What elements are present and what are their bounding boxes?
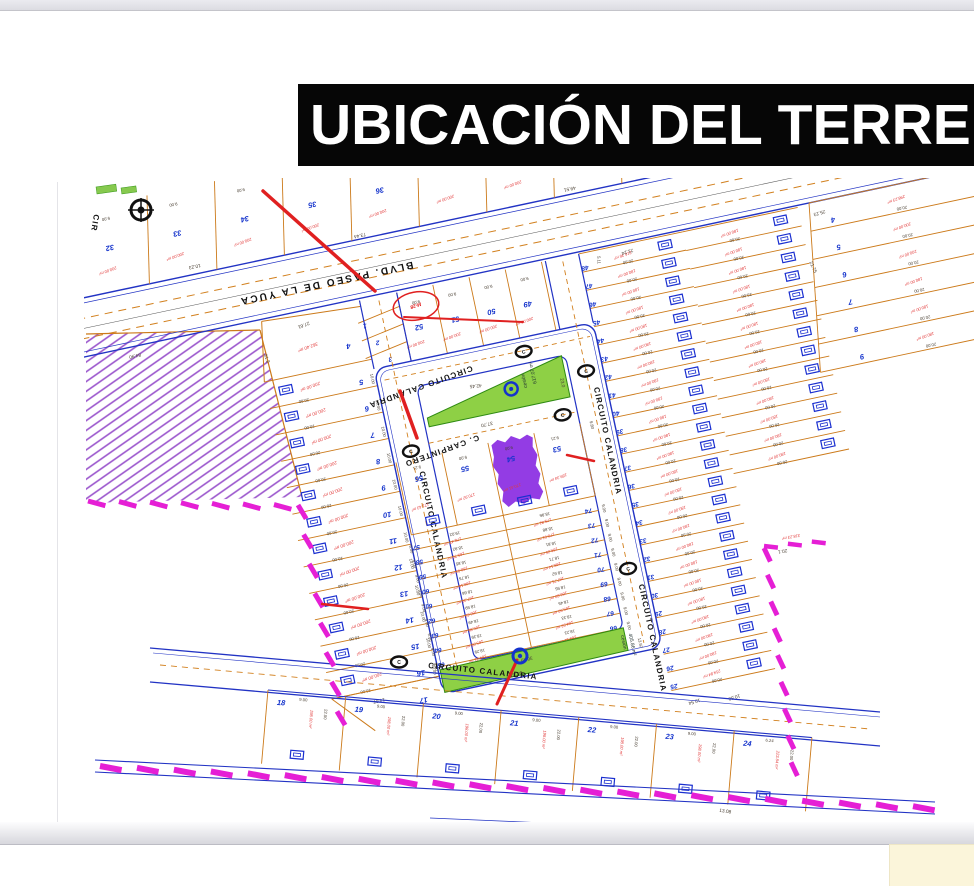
- right-lot-column-b: 180.00 m²20.00180.00 m²20.00180.00 m²20.…: [682, 207, 849, 475]
- garage-icon-inner: [333, 625, 340, 629]
- next-slide-corner: [889, 844, 974, 886]
- boundary-dash: [273, 502, 292, 512]
- lot-dim: 9.00: [299, 697, 308, 703]
- lot-area: 170.92 m²: [456, 492, 476, 503]
- boundary-dash: [691, 792, 714, 802]
- boundary-dash: [318, 622, 330, 638]
- garage-icon: [809, 382, 823, 393]
- lot-area: 200.00 m²: [503, 179, 524, 191]
- garage-icon-inner: [449, 767, 456, 771]
- lot-number: 56: [413, 473, 424, 484]
- red-dimension-mark: [400, 391, 417, 438]
- lot-dim: 20.00: [919, 314, 931, 321]
- garage-icon-inner: [371, 760, 378, 764]
- lot-dim: 20.00: [736, 273, 748, 280]
- boundary-dash: [301, 533, 313, 549]
- street-label-cir-partial: CIR: [89, 214, 101, 233]
- lot-dim: 20.00: [707, 659, 719, 666]
- garage-icon-inner: [661, 243, 668, 247]
- lot-dim: 18.66: [461, 589, 473, 596]
- garage-icon-inner: [282, 388, 289, 392]
- oval-letter: C: [626, 566, 631, 573]
- lot-area: 200.00 m²: [299, 380, 322, 392]
- lot-dim: 20.00: [660, 440, 672, 447]
- garage-icon-inner: [824, 441, 831, 445]
- lot-dim: 9.00: [626, 621, 633, 631]
- lot-number: 4: [345, 341, 352, 351]
- lot-dim: 20.00: [688, 568, 700, 575]
- lot-dim: 20.00: [695, 604, 707, 611]
- lot-number: 32: [104, 243, 115, 254]
- lot-dim: 20.00: [309, 450, 321, 457]
- garage-icon: [801, 345, 815, 356]
- garage-icon: [773, 215, 787, 226]
- garage-icon: [312, 543, 326, 554]
- garage-icon-inner: [604, 780, 611, 784]
- garage-icon-inner: [681, 334, 688, 338]
- garage-icon: [368, 757, 382, 766]
- lot-line: [730, 430, 845, 455]
- slide-bottom-shadow: [0, 822, 974, 845]
- lot-dim: 10.23: [188, 262, 201, 270]
- garage-icon-inner: [812, 385, 819, 389]
- lot-dim: 9.00: [613, 562, 620, 572]
- lot-line: [503, 515, 531, 647]
- garage-icon: [677, 330, 691, 341]
- lot-dim: 20.00: [901, 232, 913, 239]
- lot-line: [541, 262, 556, 330]
- boundary-dash: [321, 774, 344, 784]
- lot-dim: 20.00: [637, 331, 649, 338]
- lot-dim: 9.00: [604, 518, 611, 528]
- green-patch: [96, 184, 117, 194]
- lot-area: 198.00 m²: [463, 723, 470, 742]
- lot-line: [734, 449, 849, 474]
- lot-line: [726, 412, 841, 437]
- garage-icon-inner: [719, 515, 726, 519]
- lot-area: 200.00 m²: [310, 433, 333, 445]
- lot-number: 33: [172, 228, 183, 239]
- lot-number: 34: [239, 214, 250, 225]
- lot-dim: 9.00: [33, 230, 43, 237]
- lot-area: 200.00 m²: [327, 512, 350, 524]
- lot-line: [698, 282, 813, 307]
- boundary-dash: [839, 800, 862, 810]
- garage-icon: [681, 349, 695, 360]
- garage-icon-inner: [327, 599, 334, 603]
- lot-number: 21: [509, 718, 519, 728]
- oval-letter: C: [560, 412, 565, 419]
- lot-line: [817, 268, 974, 316]
- garage-icon-inner: [299, 467, 306, 471]
- lot-dim: 20.00: [699, 622, 711, 629]
- lot-number: 71: [593, 550, 602, 558]
- lot-number: 19: [354, 705, 364, 715]
- lot-number: 49: [522, 299, 534, 310]
- lot-number: 6: [363, 404, 369, 414]
- lot-dim: 18.23: [563, 629, 575, 636]
- boundary-dash: [180, 500, 199, 510]
- garage-icon-inner: [816, 404, 823, 408]
- garage-icon: [658, 240, 672, 251]
- garage-icon-inner: [293, 440, 300, 444]
- garage-icon: [716, 512, 730, 523]
- lot-dim: 9.00: [623, 607, 630, 617]
- lot-dim: 18.81: [545, 540, 557, 547]
- lot-dim: 18.33: [560, 614, 572, 621]
- boundary-dash: [395, 778, 418, 788]
- lot-area: 180.00 m²: [904, 276, 924, 287]
- lot-area: 200.00 m²: [478, 323, 499, 335]
- garage-icon-inner: [673, 297, 680, 301]
- lot-number: 31: [37, 257, 47, 268]
- garage-icon: [340, 675, 354, 686]
- lot-number: 8: [375, 457, 381, 467]
- lot-dim: 20.00: [732, 255, 744, 262]
- garage-icon-inner: [305, 493, 312, 497]
- lot-dim: 20.00: [728, 236, 740, 243]
- lot-line: [276, 412, 384, 435]
- lot-dim: 9.00: [519, 276, 529, 283]
- lot-dim: 20.00: [303, 424, 315, 431]
- boundary-dash: [358, 776, 381, 786]
- lot-area: 200.00 m²: [344, 592, 367, 604]
- garage-icon-inner: [669, 279, 676, 283]
- lot-dim: 9.80: [589, 421, 596, 431]
- garage-icon-inner: [746, 643, 753, 647]
- oval-letter: C: [584, 369, 589, 376]
- lot-line: [694, 263, 809, 288]
- lot-dim: 20.00: [629, 295, 641, 302]
- lot-dim: 19.02: [449, 530, 461, 537]
- garage-icon-inner: [723, 534, 730, 538]
- lot-area: 200.00 m²: [898, 248, 919, 260]
- lot-dim: 10.19: [47, 292, 60, 300]
- lot-area: 198.00 m²: [541, 730, 548, 749]
- lot-dim: 9.00: [447, 291, 457, 298]
- lot-line: [819, 295, 974, 344]
- lot-number: 18: [277, 698, 287, 708]
- boundary-dash: [654, 790, 677, 800]
- lot-line: [718, 375, 833, 400]
- lot-area: 200.00 m²: [98, 265, 119, 277]
- lot-number: 8: [852, 325, 859, 335]
- lot-dim: 18.85: [455, 560, 467, 567]
- lot-number: 73: [587, 521, 596, 529]
- boundary-dash: [762, 547, 773, 563]
- lot-line: [199, 181, 233, 269]
- lot-number: 5: [835, 242, 842, 252]
- lot-dim: 20.00: [354, 661, 366, 668]
- garage-icon-inner: [750, 661, 757, 665]
- lot-dim: 20.00: [925, 342, 937, 349]
- lot-dim: 20.00: [748, 329, 760, 336]
- lot-area: 298.23 m²: [886, 194, 907, 206]
- lot-dim: 9.00: [303, 173, 313, 180]
- garage-icon-inner: [739, 606, 746, 610]
- boundary-dash: [779, 681, 790, 697]
- lot-dim: 20.00: [744, 310, 756, 317]
- lot-line: [131, 195, 165, 283]
- boundary-dash: [432, 779, 455, 789]
- lot-dim: 9.00: [236, 187, 246, 194]
- green-triangle-park: cesión 617.07 m² 37.70 42.45 23.0: [420, 355, 572, 439]
- lot-dim: 9.00: [619, 592, 626, 602]
- boundary-dash: [765, 574, 776, 590]
- lot-area: 198.00 m²: [385, 716, 392, 735]
- title-banner: UBICACIÓN DEL TERRENO: [298, 84, 974, 166]
- lot-area: 200.00 m²: [165, 251, 186, 263]
- boundary-dash: [785, 734, 796, 750]
- lot-dim: 9.00: [458, 455, 468, 462]
- boundary-dash: [324, 651, 336, 667]
- lot-line: [264, 359, 372, 382]
- lot-dim: 20.00: [298, 397, 310, 404]
- garage-icon: [318, 569, 332, 580]
- lot-number: 52: [413, 322, 424, 333]
- garage-icon-inner: [727, 552, 734, 556]
- lot-dim: 18.55: [554, 585, 566, 592]
- garage-icon: [296, 464, 310, 475]
- garage-icon-inner: [288, 414, 295, 418]
- lot-dim: 9.00: [168, 201, 178, 208]
- garage-icon-inner: [700, 425, 707, 429]
- boundary-dash: [136, 765, 159, 775]
- garage-icon: [700, 440, 714, 451]
- oval-letter: C: [409, 449, 414, 456]
- lot-dim: 42.45: [469, 382, 482, 389]
- garage-icon-inner: [688, 370, 695, 374]
- lot-line: [813, 213, 974, 259]
- lot-line: [671, 669, 775, 691]
- garage-icon: [743, 640, 757, 651]
- lot-dim: 27.61: [297, 320, 311, 330]
- lot-dim: 10.00: [369, 373, 376, 385]
- garage-icon: [329, 622, 343, 633]
- lot-line: [396, 462, 411, 534]
- lot-number: 2: [375, 338, 381, 346]
- lot-number: 67: [606, 609, 615, 617]
- garage-icon: [704, 458, 718, 469]
- garage-icon-inner: [800, 330, 807, 334]
- lot-number: 72: [590, 536, 599, 544]
- lot-dim: 20.00: [913, 287, 925, 294]
- lot-dim: 9.00: [377, 704, 386, 710]
- lot-area: 200.00 m²: [368, 208, 389, 220]
- lot-dim: 20.00: [641, 349, 653, 356]
- lot-dim: 9.00: [688, 731, 697, 737]
- lot-area: 200.00 m²: [233, 236, 254, 248]
- lot-line: [339, 697, 345, 771]
- lot-line: [710, 337, 825, 362]
- boundary-dash: [469, 781, 492, 791]
- lot-dim: 20.00: [896, 205, 908, 212]
- garage-icon-inner: [820, 422, 827, 426]
- street-label-carpintero: C. CARPINTERO: [403, 433, 480, 468]
- boundary-dash: [210, 769, 233, 779]
- lot-dim: 9.00: [616, 577, 623, 587]
- garage-icon-inner: [696, 406, 703, 410]
- lot-dim: 22.00: [323, 709, 329, 721]
- lot-number: 7: [369, 430, 375, 440]
- lot-number: 9: [858, 352, 865, 362]
- garage-icon-inner: [567, 489, 574, 493]
- garage-icon-inner: [743, 625, 750, 629]
- boundary-dash: [802, 798, 825, 808]
- boundary-dash: [284, 772, 307, 782]
- garage-icon: [472, 505, 486, 516]
- lot-dim: 20.00: [657, 422, 669, 429]
- garage-icon: [523, 771, 537, 780]
- garage-icon: [735, 603, 749, 614]
- lot-dim: 20.00: [342, 609, 354, 616]
- lot-line: [0, 224, 30, 312]
- lot-number: 68: [603, 594, 612, 602]
- garage-icon-inner: [338, 652, 345, 656]
- garage-icon: [821, 438, 835, 449]
- boundary-dash: [149, 500, 168, 510]
- lot-dim: 13.97: [637, 637, 644, 649]
- green-patch: [121, 186, 137, 194]
- lot-area: 200.00 m²: [30, 279, 51, 291]
- lot-number: 10: [382, 510, 392, 520]
- lot-number: 55: [459, 463, 470, 474]
- boundary-dash: [789, 761, 800, 777]
- lot-area: 223.84 m²: [774, 749, 781, 769]
- lot-line: [686, 226, 801, 251]
- highlighted-target-lot: [487, 431, 546, 508]
- lot-dim: 20.00: [676, 513, 688, 520]
- lot-dim: 5.11: [596, 256, 601, 265]
- lot-area: 200.00 m²: [570, 165, 591, 177]
- lot-area: 200.00 m²: [339, 565, 362, 577]
- lot-area: 189.34 m²: [548, 472, 568, 483]
- garage-icon: [685, 367, 699, 378]
- boundary-dash: [775, 654, 786, 670]
- lot-dim: 20.00: [680, 531, 692, 538]
- garage-icon-inner: [735, 588, 742, 592]
- lot-line: [281, 438, 389, 461]
- lot-number: 74: [584, 506, 593, 514]
- lot-number: 50: [486, 307, 497, 318]
- lot-dim: 20.00: [348, 635, 360, 642]
- lot-line: [270, 386, 378, 409]
- lot-dim: 22.00: [556, 729, 562, 741]
- boundary-dash: [247, 770, 270, 780]
- lot-dim: 20.00: [756, 366, 768, 373]
- lot-dim: 9.00: [483, 284, 493, 291]
- page-title: UBICACIÓN DEL TERRENO: [298, 84, 974, 166]
- lot-dim: 20.00: [768, 422, 780, 429]
- garage-icon: [301, 490, 315, 501]
- monument-icon: [128, 198, 154, 222]
- lot-dim: 20.00: [684, 549, 696, 556]
- garage-icon-inner: [708, 461, 715, 465]
- lot-number: 26: [665, 663, 675, 672]
- garage-icon: [797, 326, 811, 337]
- garage-icon: [335, 649, 349, 660]
- garage-icon: [689, 385, 703, 396]
- lot-dim: 18.96: [539, 511, 551, 518]
- garage-icon: [279, 385, 293, 396]
- garage-icon: [724, 549, 738, 560]
- lot-dim: 9.00: [455, 710, 464, 716]
- lot-dim: 9.00: [601, 504, 608, 514]
- lot-number: 69: [600, 580, 609, 588]
- lot-area: 198.00 m²: [696, 744, 703, 763]
- lot-dim: 22.00: [633, 736, 639, 748]
- red-dimension-mark: [263, 191, 375, 291]
- lot-dim: 22.00: [400, 716, 406, 728]
- garage-icon: [805, 364, 819, 375]
- garage-icon-inner: [808, 367, 815, 371]
- garage-icon: [793, 308, 807, 319]
- lot-area: 200.00 m²: [333, 539, 356, 551]
- lot-dim: 18.88: [542, 526, 554, 533]
- lot-dim: 9.00: [101, 216, 111, 223]
- lot-line: [572, 717, 578, 791]
- lot-dim: 20.00: [331, 556, 343, 563]
- boundary-dash: [543, 785, 566, 795]
- garage-icon: [708, 476, 722, 487]
- lot-line: [495, 710, 501, 784]
- boundary-dash: [875, 801, 898, 811]
- garage-icon: [785, 271, 799, 282]
- lot-number: 70: [596, 565, 605, 573]
- lot-number: 5: [358, 378, 364, 388]
- garage-icon-inner: [715, 497, 722, 501]
- garage-icon-inner: [781, 237, 788, 241]
- boundary-dash: [329, 681, 341, 697]
- lot-number: 9: [380, 483, 386, 493]
- lot-area: 198.00 m²: [619, 737, 626, 756]
- garage-icon: [747, 658, 761, 669]
- garage-icon-inner: [310, 520, 317, 524]
- lot-dim: 20.00: [668, 477, 680, 484]
- lot-dim: 20.00: [772, 441, 784, 448]
- lot-dim: 20.00: [326, 529, 338, 536]
- lot-line: [287, 465, 395, 488]
- lot-dim: 9.00: [532, 717, 541, 723]
- lot-dim: 20.00: [711, 677, 723, 684]
- lot-dim: 18.49: [467, 618, 479, 625]
- boundary-dash: [580, 787, 603, 797]
- lot-number: 20: [431, 711, 442, 721]
- lot-area: 200.00 m²: [322, 486, 345, 498]
- lot-dim: 9.00: [610, 724, 619, 730]
- garage-icon: [673, 312, 687, 323]
- garage-icon-inner: [526, 773, 533, 777]
- lot-area: 180.00 m²: [915, 331, 935, 342]
- lot-line: [690, 245, 805, 270]
- garage-icon-inner: [712, 479, 719, 483]
- lot-area: 318.23 m²: [781, 533, 801, 541]
- lot-dim: 18.59: [464, 604, 476, 611]
- lot-dim: 22.00: [711, 743, 717, 755]
- lot-area: 180.00 m²: [909, 304, 929, 315]
- lot-dim: 20.00: [633, 313, 645, 320]
- lot-area: 200.00 m²: [355, 644, 378, 656]
- lot-dim: 21.75: [808, 261, 818, 275]
- lot-line: [728, 731, 734, 805]
- lot-dim: 9.21: [550, 435, 560, 442]
- street-label-blvd: BLVD. PASEO DE LA YUCA: [238, 259, 414, 307]
- lot-dim: 20.00: [645, 367, 657, 374]
- lot-number: 6: [841, 270, 848, 280]
- lot-line: [722, 393, 837, 418]
- garage-icon-inner: [777, 218, 784, 222]
- garage-icon-inner: [321, 572, 328, 576]
